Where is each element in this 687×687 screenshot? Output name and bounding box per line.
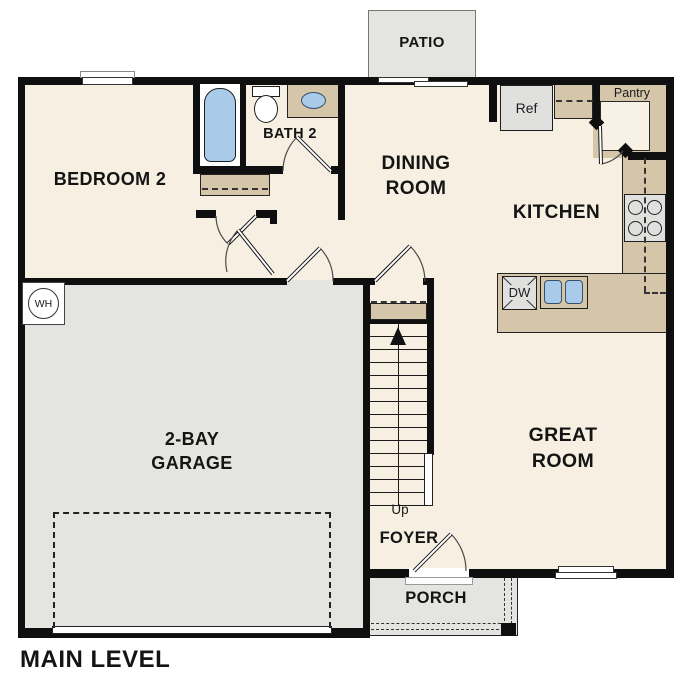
porch-dash-h2 (371, 629, 504, 630)
garage-door-outline (53, 512, 331, 628)
bedroom-window-inner (82, 77, 133, 85)
coat-closet-shelf (370, 303, 427, 320)
counter-by-ref-centerline (556, 100, 593, 102)
great-room-label: GREAT ROOM (503, 423, 623, 474)
coat-closet-door (373, 244, 427, 283)
foyer-label: FOYER (368, 528, 450, 550)
staircase (370, 324, 427, 506)
water-heater: WH (28, 288, 59, 319)
stair-handrail (424, 453, 433, 506)
kitchen-label: KITCHEN (494, 200, 619, 225)
patio-label: PATIO (380, 33, 464, 53)
porch-dash-v2 (511, 578, 512, 624)
wall-bath-bottom-a (193, 166, 283, 174)
wall-bed-bath (193, 84, 200, 170)
coat-closet-rod (371, 301, 426, 303)
dw-label: DW (503, 285, 536, 300)
great-line1: GREAT (529, 424, 598, 446)
toilet-bowl (254, 95, 278, 123)
plan-title: MAIN LEVEL (20, 644, 240, 676)
burner-icon (628, 200, 643, 215)
sink-bowl (544, 280, 562, 304)
wall-closet-a (196, 210, 216, 218)
kitchen-sink (540, 276, 588, 309)
bedroom-closet-shelf (200, 174, 270, 196)
stair-up-arrow-icon (390, 327, 406, 345)
front-door-sill (405, 577, 473, 585)
counter-right-centerline-end (644, 292, 666, 294)
ref-label: Ref (516, 100, 538, 116)
wall-hall-b (333, 278, 375, 285)
bathtub (204, 88, 236, 162)
porch-dash-h1 (371, 623, 511, 624)
dining-line2: ROOM (386, 178, 447, 199)
porch-label: PORCH (398, 588, 474, 610)
bath-sink (301, 92, 326, 109)
pantry-label: Pantry (602, 86, 662, 100)
refrigerator: Ref (500, 85, 553, 131)
wall-left (18, 77, 25, 638)
wall-garage-right (363, 278, 370, 636)
garage-label: 2-BAY GARAGE (132, 428, 252, 476)
wh-label: WH (35, 298, 53, 310)
bath2-label: BATH 2 (245, 125, 335, 144)
up-label: Up (378, 502, 422, 517)
burner-icon (647, 200, 662, 215)
garage-entry-door (285, 246, 335, 283)
great-line2: ROOM (532, 450, 594, 472)
patio-slider-panel2 (414, 81, 468, 87)
burner-icon (628, 221, 643, 236)
wall-ref-stub (489, 84, 497, 122)
greatroom-window-inner (555, 572, 617, 579)
dining-room-label: DINING ROOM (358, 151, 474, 201)
pantry-door (596, 124, 628, 168)
sink-bowl (565, 280, 583, 304)
stair-centerline (398, 324, 399, 506)
porch-post (501, 623, 516, 636)
burner-icon (647, 221, 662, 236)
garage-line2: GARAGE (151, 453, 232, 473)
wall-stairs-right (427, 278, 434, 455)
floor-plan: Ref DW WH (0, 0, 687, 687)
bedroom-closet-rod (202, 188, 268, 190)
bedroom-door (225, 224, 277, 278)
dishwasher: DW (502, 276, 537, 310)
wall-bed-hall-nub (270, 210, 277, 224)
garage-line1: 2-BAY (165, 429, 219, 449)
counter-right-centerline (644, 158, 646, 292)
bedroom2-label: BEDROOM 2 (30, 168, 190, 192)
wall-bath-dining (338, 84, 345, 220)
dining-line1: DINING (382, 153, 451, 174)
porch-dash-v1 (504, 578, 505, 626)
wall-pantry-bottom (628, 152, 674, 160)
